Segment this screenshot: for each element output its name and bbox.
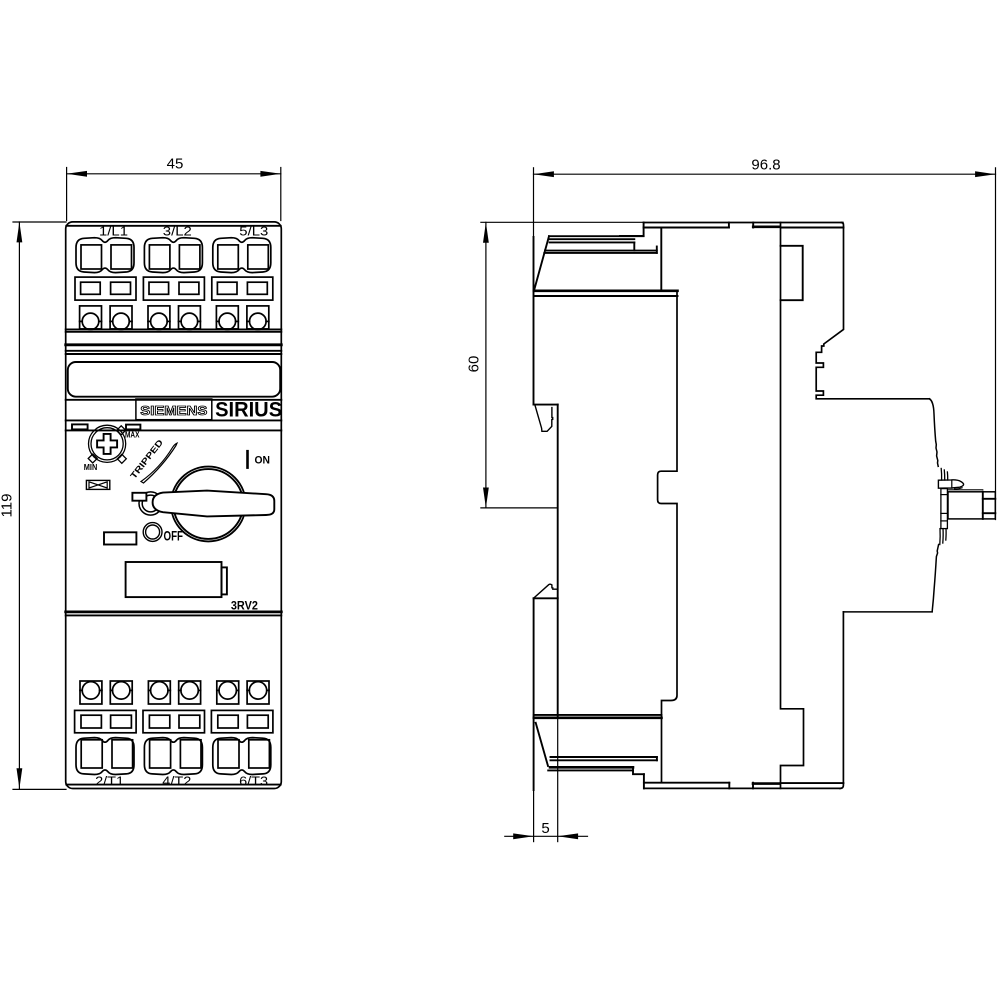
- svg-text:5: 5: [541, 820, 549, 837]
- svg-text:4/T2: 4/T2: [162, 775, 191, 789]
- svg-text:MAX: MAX: [125, 430, 140, 440]
- svg-text:45: 45: [167, 156, 184, 173]
- svg-text:SIEMENS: SIEMENS: [140, 403, 207, 418]
- svg-text:1/L1: 1/L1: [99, 225, 128, 239]
- svg-text:60: 60: [466, 356, 483, 373]
- svg-text:119: 119: [0, 494, 16, 518]
- svg-text:2/T1: 2/T1: [95, 775, 124, 789]
- svg-text:96.8: 96.8: [751, 157, 780, 174]
- svg-text:5/L3: 5/L3: [239, 225, 268, 239]
- svg-text:3/L2: 3/L2: [163, 225, 192, 239]
- svg-text:6/T3: 6/T3: [239, 775, 268, 789]
- svg-text:MIN: MIN: [84, 462, 98, 472]
- svg-text:SIRIUS: SIRIUS: [215, 399, 282, 422]
- svg-text:ON: ON: [255, 454, 271, 466]
- svg-text:OFF: OFF: [164, 529, 184, 544]
